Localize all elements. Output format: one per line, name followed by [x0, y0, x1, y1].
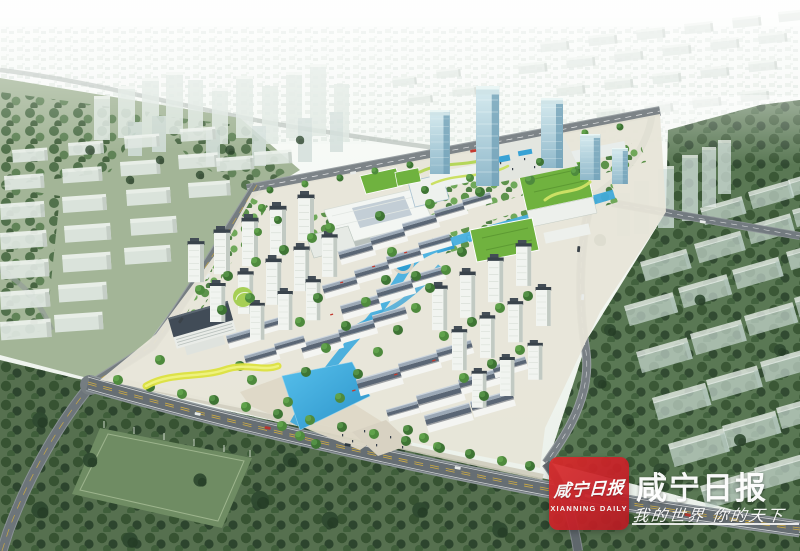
slogan-underline	[632, 523, 799, 525]
logo-calligraphy: 咸宁日报	[553, 473, 625, 502]
logo-subtitle: XIANNING DAILY	[550, 504, 627, 513]
newspaper-logo-badge: 咸宁日报 XIANNING DAILY	[549, 457, 629, 530]
architectural-rendering: 咸宁日报 XIANNING DAILY 咸宁日报 我的世界 你的天下	[0, 0, 800, 551]
